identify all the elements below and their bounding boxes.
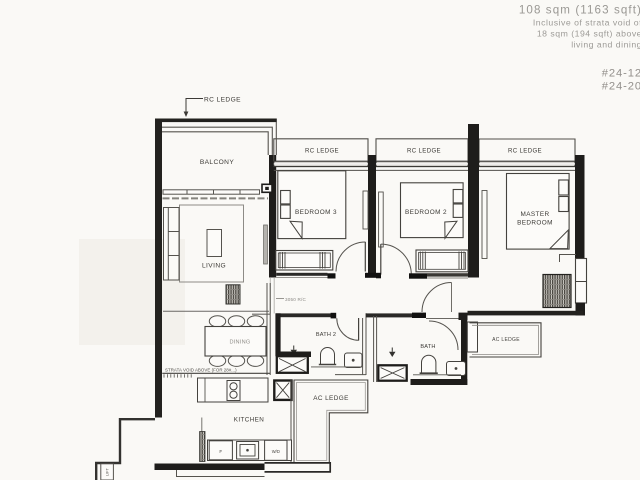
svg-text:STRATA VOID ABOVE (FOR 28#...): STRATA VOID ABOVE (FOR 28#...) <box>165 367 237 372</box>
svg-text:RC LEDGE: RC LEDGE <box>508 148 542 155</box>
svg-text:BEDROOM 2: BEDROOM 2 <box>405 209 447 216</box>
svg-text:W/D: W/D <box>272 449 280 454</box>
svg-text:BATH: BATH <box>420 344 435 350</box>
svg-text:BEDROOM: BEDROOM <box>517 220 553 227</box>
svg-text:#24-12: #24-12 <box>602 68 640 80</box>
svg-text:108 sqm (1163 sqft): 108 sqm (1163 sqft) <box>519 4 640 17</box>
svg-text:BATH 2: BATH 2 <box>316 332 336 338</box>
svg-text:living and dining: living and dining <box>571 40 640 50</box>
svg-text:3050 R/C: 3050 R/C <box>285 297 306 302</box>
svg-text:DINING: DINING <box>229 339 250 345</box>
svg-text:AC LEDGE: AC LEDGE <box>313 395 349 402</box>
svg-text:KITCHEN: KITCHEN <box>234 417 264 424</box>
svg-text:BALCONY: BALCONY <box>200 159 235 166</box>
svg-text:F: F <box>219 449 222 454</box>
svg-text:LIFT: LIFT <box>106 468 110 476</box>
svg-text:Inclusive of strata void of: Inclusive of strata void of <box>533 18 640 28</box>
svg-text:18 sqm (194 sqft) above: 18 sqm (194 sqft) above <box>537 29 640 39</box>
svg-text:MASTER: MASTER <box>520 211 549 218</box>
svg-text:RC LEDGE: RC LEDGE <box>407 148 441 155</box>
svg-text:RC LEDGE: RC LEDGE <box>305 148 339 155</box>
svg-text:AC LEDGE: AC LEDGE <box>492 337 520 343</box>
svg-text:RC LEDGE: RC LEDGE <box>204 97 241 104</box>
svg-text:BEDROOM 3: BEDROOM 3 <box>295 209 337 216</box>
svg-text:#24-20: #24-20 <box>602 81 640 93</box>
svg-text:LIVING: LIVING <box>202 263 226 270</box>
